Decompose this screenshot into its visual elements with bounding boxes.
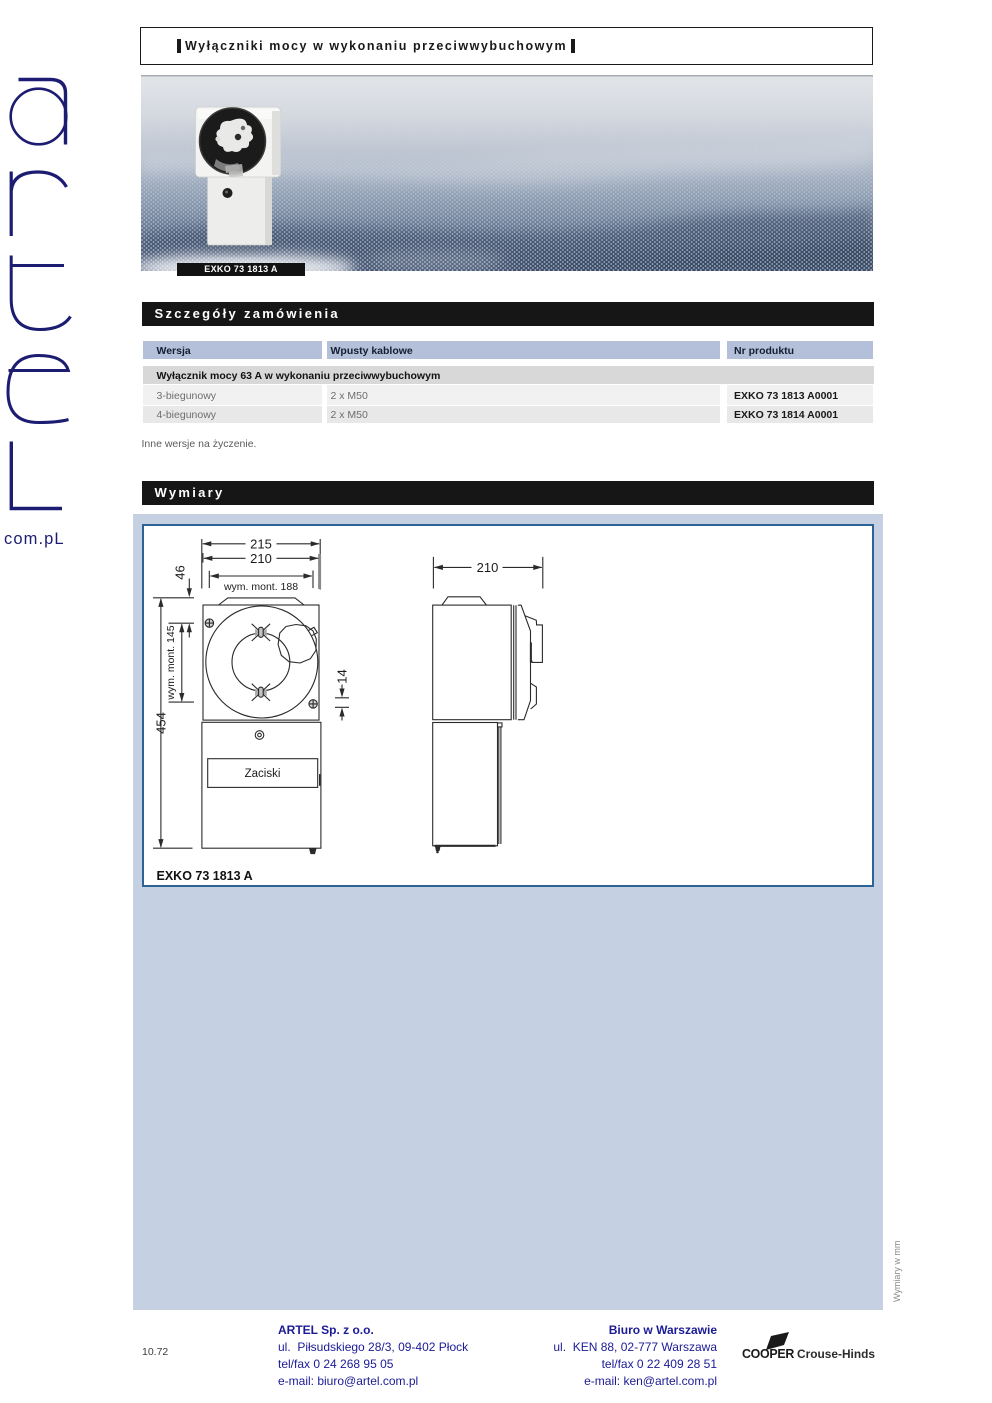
svg-text:com.pL: com.pL [4, 530, 65, 548]
svg-text:210: 210 [476, 560, 498, 575]
svg-text:46: 46 [172, 565, 187, 579]
svg-text:wym. mont. 188: wym. mont. 188 [222, 581, 297, 593]
svg-text:Zaciski: Zaciski [244, 768, 280, 780]
svg-text:454: 454 [153, 712, 168, 734]
svg-text:210: 210 [250, 551, 272, 566]
svg-text:14: 14 [334, 669, 349, 683]
svg-text:COOPER: COOPER [742, 1347, 794, 1361]
svg-text:wym. mont. 145: wym. mont. 145 [165, 625, 177, 700]
svg-text:215: 215 [250, 536, 272, 551]
svg-text:Crouse-Hinds: Crouse-Hinds [797, 1347, 875, 1361]
svg-text:EXKO 73 1813 A: EXKO 73 1813 A [156, 869, 252, 883]
